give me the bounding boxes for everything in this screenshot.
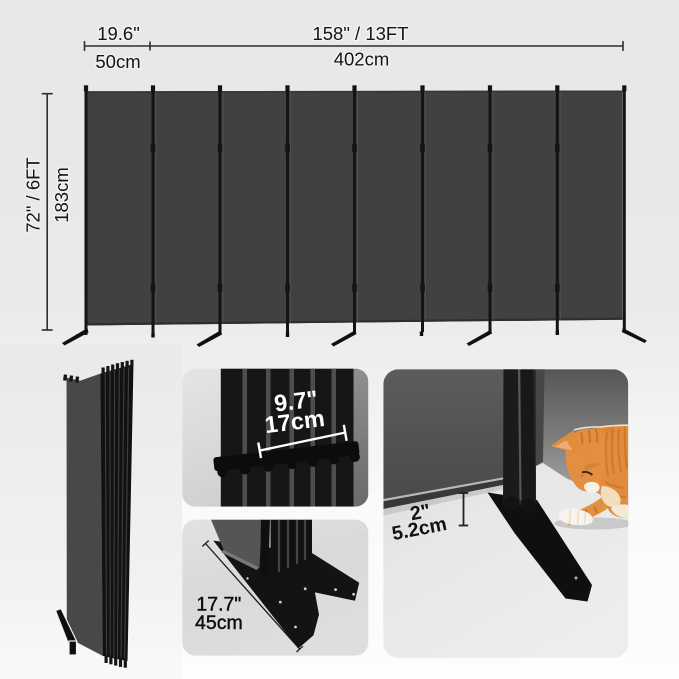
svg-text:19.6": 19.6": [97, 23, 140, 44]
svg-text:72" / 6FT: 72" / 6FT: [23, 157, 44, 232]
svg-text:183cm: 183cm: [51, 167, 72, 223]
svg-text:50cm: 50cm: [95, 51, 140, 72]
svg-text:158" / 13FT: 158" / 13FT: [312, 23, 408, 44]
svg-text:402cm: 402cm: [334, 49, 390, 70]
svg-text:45cm: 45cm: [195, 612, 243, 634]
